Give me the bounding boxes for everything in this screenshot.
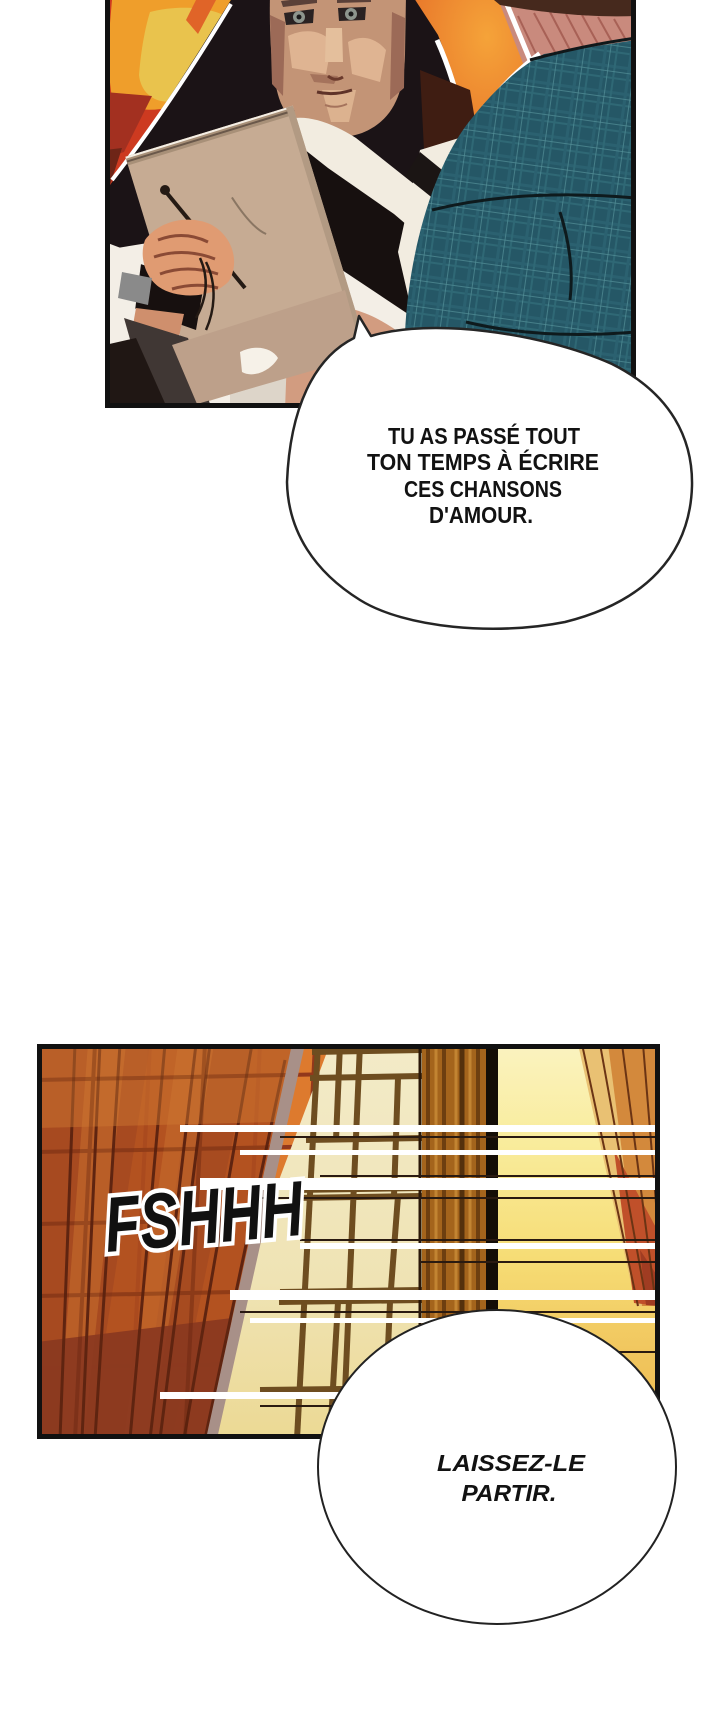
- svg-text:LAISSEZ-LE: LAISSEZ-LE: [437, 1450, 586, 1476]
- svg-text:D'AMOUR.: D'AMOUR.: [429, 502, 533, 528]
- svg-text:TON TEMPS À ÉCRIRE: TON TEMPS À ÉCRIRE: [367, 448, 599, 475]
- svg-text:PARTIR.: PARTIR.: [462, 1480, 557, 1506]
- svg-text:CES CHANSONS: CES CHANSONS: [404, 476, 562, 502]
- svg-text:TU AS PASSÉ TOUT: TU AS PASSÉ TOUT: [388, 422, 580, 449]
- svg-text:FSHHH: FSHHH: [101, 1164, 308, 1269]
